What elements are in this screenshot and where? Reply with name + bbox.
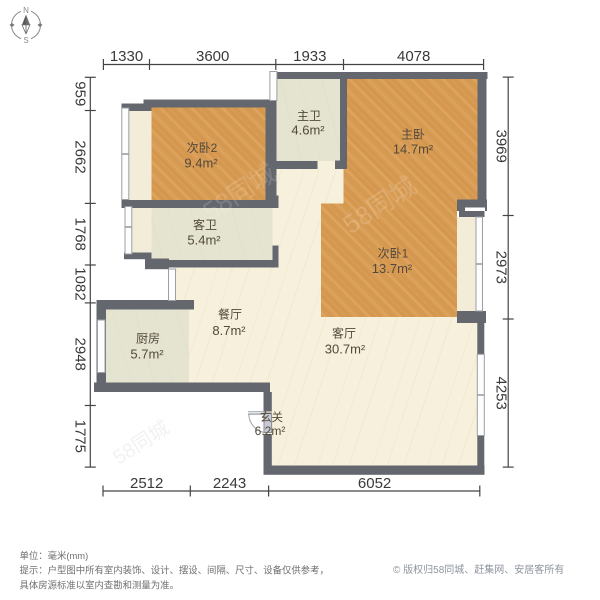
svg-text:次卧2: 次卧2 (187, 141, 218, 155)
svg-text:© 版权归58同城、赶集网、安居客所有: © 版权归58同城、赶集网、安居客所有 (393, 563, 564, 576)
svg-text:2662: 2662 (71, 140, 88, 173)
svg-text:8.7m²: 8.7m² (212, 323, 246, 338)
svg-text:2512: 2512 (130, 475, 163, 492)
svg-text:30.7m²: 30.7m² (325, 342, 366, 357)
svg-text:3600: 3600 (196, 48, 229, 65)
svg-text:提示：户型图中所有室内装饰、设计、摆设、间隔、尺寸、设备仅供: 提示：户型图中所有室内装饰、设计、摆设、间隔、尺寸、设备仅供参考， (20, 565, 329, 576)
svg-text:客厅: 客厅 (332, 326, 356, 341)
svg-text:1768: 1768 (71, 218, 88, 251)
svg-text:次卧1: 次卧1 (378, 247, 409, 261)
svg-text:9.4m²: 9.4m² (184, 156, 218, 171)
svg-text:厨房: 厨房 (136, 331, 160, 346)
svg-text:4.6m²: 4.6m² (291, 123, 325, 138)
svg-text:6052: 6052 (358, 475, 391, 492)
svg-text:单位：毫米(mm): 单位：毫米(mm) (20, 550, 89, 561)
svg-text:3969: 3969 (493, 130, 510, 163)
svg-text:主卧: 主卧 (401, 128, 425, 142)
svg-text:5.7m²: 5.7m² (130, 347, 164, 362)
svg-text:餐厅: 餐厅 (218, 307, 242, 322)
svg-text:1933: 1933 (293, 48, 326, 65)
svg-text:4253: 4253 (493, 377, 510, 410)
svg-text:58同城: 58同城 (109, 416, 174, 469)
svg-text:1775: 1775 (71, 420, 88, 453)
svg-text:14.7m²: 14.7m² (393, 142, 434, 157)
svg-text:5.4m²: 5.4m² (187, 233, 221, 248)
svg-text:主卫: 主卫 (297, 109, 321, 123)
svg-text:玄关: 玄关 (260, 410, 283, 424)
svg-text:客卫: 客卫 (193, 217, 217, 232)
svg-text:S: S (23, 36, 28, 45)
svg-text:2243: 2243 (213, 475, 246, 492)
svg-text:4078: 4078 (397, 48, 430, 65)
svg-text:具体房源标准以室内查勘和测量为准。: 具体房源标准以室内查勘和测量为准。 (20, 580, 179, 591)
svg-text:959: 959 (71, 81, 88, 106)
svg-text:1082: 1082 (71, 267, 88, 300)
svg-text:2948: 2948 (71, 338, 88, 371)
svg-text:13.7m²: 13.7m² (372, 261, 413, 276)
svg-text:2973: 2973 (493, 251, 510, 284)
svg-text:N: N (23, 6, 29, 15)
svg-text:6.2m²: 6.2m² (255, 424, 286, 438)
svg-text:1330: 1330 (110, 48, 143, 65)
